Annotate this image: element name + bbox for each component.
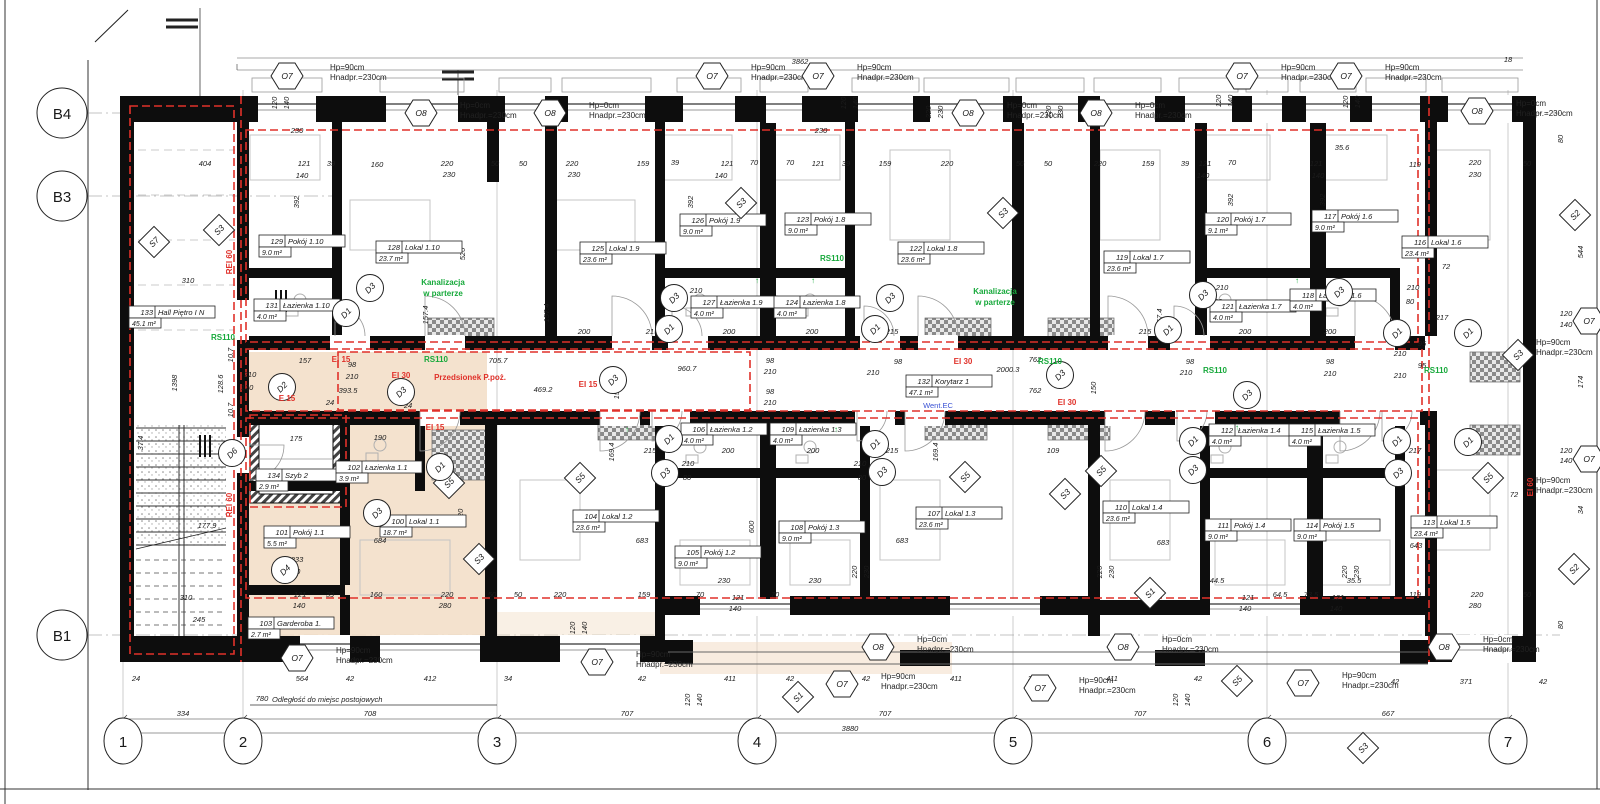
room-area: 4.0 m²	[257, 314, 278, 321]
dim-label: 50	[1016, 159, 1025, 168]
fire-rating-label: EI 30	[954, 357, 973, 366]
struct-marker-S5: S5	[564, 462, 595, 493]
room-label-114: 114Pokój 1.59.0 m²	[1294, 519, 1380, 541]
window-lintel-note: Hnadpr.=230cm	[881, 682, 938, 691]
dim-label: 120	[1214, 94, 1223, 107]
door-marker-D1: D1	[656, 426, 683, 453]
marker-id: O7	[1583, 454, 1595, 464]
room-name: Łazienka 1.10	[283, 301, 331, 310]
room-name: Lokal 1.9	[609, 244, 640, 253]
dim-label: 70	[750, 158, 759, 167]
room-number: 112	[1221, 426, 1234, 435]
grid-bubble-label: B4	[53, 106, 71, 123]
room-name: Łazienka 1.8	[803, 298, 846, 307]
door-marker-D1: D1	[1455, 320, 1482, 347]
dim-label: 683	[636, 536, 649, 545]
marker-id: O8	[1117, 642, 1129, 652]
dim-label: 220	[924, 105, 933, 119]
door-marker-D3: D3	[1190, 282, 1217, 309]
parking-note-text: Odległość do miejsc postojowych	[272, 695, 382, 704]
window-lintel-note: Hnadpr.=230cm	[917, 645, 974, 654]
room-number: 134	[267, 471, 280, 480]
room-name: Lokal 1.4	[1132, 503, 1162, 512]
room-area: 4.0 m²	[777, 311, 798, 318]
window-height-note: Hp=0cm	[1162, 635, 1192, 644]
room-number: 129	[270, 237, 283, 246]
dim-label: 215	[643, 446, 657, 455]
struct-marker-S3: S3	[203, 214, 234, 245]
window-lintel-note: Hnadpr.=230cm	[1516, 109, 1573, 118]
room-area: 23.6 m²	[1105, 516, 1130, 523]
flow-arrow: ↑	[1295, 276, 1299, 285]
room-number: 100	[391, 517, 404, 526]
room-label-133: 133Hall Piętro I N45.1 m²	[129, 306, 215, 328]
room-number: 102	[347, 463, 360, 472]
dim-label: 210	[763, 398, 777, 407]
dim-label: 70	[696, 590, 705, 599]
room-number: 106	[692, 425, 705, 434]
struct-marker-S2: S2	[1559, 199, 1590, 230]
room-name: Garderoba 1.	[277, 619, 321, 628]
dim-label: 210	[1215, 283, 1229, 292]
marker-id: O7	[706, 71, 718, 81]
grid-bubble-label: 6	[1263, 734, 1271, 751]
dim-label: 190	[374, 433, 387, 442]
dim-label: 35.6	[1335, 143, 1350, 152]
room-label-116: 116Lokal 1.623.4 m²	[1402, 236, 1488, 258]
dim-label: 220	[940, 159, 954, 168]
dim-label: 200	[722, 327, 736, 336]
door-marker-D1: D1	[427, 454, 454, 481]
sewage-note-line2: w parterze	[974, 298, 1015, 307]
dim-label: 39	[671, 158, 680, 167]
dim-label: 210	[689, 286, 703, 295]
flow-arrow: ↑	[811, 276, 815, 285]
room-label-110: 110Lokal 1.423.6 m²	[1103, 501, 1189, 523]
dim-label: 210	[681, 459, 695, 468]
window-lintel-note: Hnadpr.=230cm	[751, 73, 808, 82]
shaft-note: RS110	[424, 355, 449, 364]
dim-label: 70	[1228, 158, 1237, 167]
dim-label: 150	[1089, 381, 1098, 394]
window-marker-O7: O7Hp=90cmHnadpr.=230cm	[271, 63, 387, 89]
dim-label: 544	[1576, 246, 1585, 259]
dim-label: 220	[565, 159, 579, 168]
room-label-115: 115Łazienka 1.54.0 m²	[1289, 424, 1375, 446]
fire-rating-label: EI 60	[1526, 477, 1535, 496]
vent-note: Went.EC	[923, 401, 953, 410]
room-number: 132	[917, 377, 930, 386]
door-marker-D3: D3	[1180, 457, 1207, 484]
floor-plan-sheet: 3862404121391602205050220159391217014023…	[0, 0, 1600, 804]
floor-plan-drawing: 3862404121391602205050220159391217014023…	[0, 0, 1600, 804]
marker-id: O7	[1583, 316, 1595, 326]
dim-label: 42	[346, 674, 355, 683]
window-height-note: Hp=90cm	[1536, 338, 1571, 347]
dim-label: 3862	[792, 57, 810, 66]
dim-label: 210	[1406, 283, 1420, 292]
grid-bubble-label: 2	[239, 734, 247, 751]
grid-bubble-B3: B3	[37, 171, 87, 221]
dim-label: 1398	[170, 374, 179, 392]
dim-label: 175	[290, 434, 303, 443]
room-area: 9.0 m²	[262, 250, 283, 257]
struct-marker-S2: S2	[1558, 553, 1589, 584]
door-marker-D6: D6	[219, 440, 246, 467]
room-number: 111	[1218, 521, 1229, 530]
struct-marker-S3: S3	[1049, 478, 1080, 509]
shaft-note: RS110	[820, 254, 845, 263]
dim-label: 683	[1157, 538, 1170, 547]
dim-label: 310	[180, 593, 193, 602]
window-marker-O7: O7Hp=90cmHnadpr.=230cm	[802, 63, 914, 89]
dim-label: 70	[771, 590, 780, 599]
room-name: Pokój 1.5	[1323, 521, 1355, 530]
dim-label: 200	[805, 327, 819, 336]
room-number: 104	[584, 512, 597, 521]
window-marker-O7: O7Hp=90cmHnadpr.=230cm	[1287, 670, 1399, 696]
room-area: 2.9 m²	[258, 484, 280, 491]
dim-label: 159	[638, 590, 651, 599]
room-area: 4.0 m²	[1293, 304, 1314, 311]
struct-marker-S3: S3	[1347, 732, 1378, 763]
dim-label: 200	[1238, 327, 1252, 336]
dim-label: 140	[695, 693, 704, 706]
window-lintel-note: Hnadpr.=230cm	[1536, 348, 1593, 357]
room-name: Lokal 1.6	[1431, 238, 1462, 247]
dim-label: 220	[1095, 565, 1104, 579]
dim-label: 120	[241, 383, 254, 392]
dim-label: 50	[1044, 159, 1053, 168]
fire-rating-label: EI 30	[392, 371, 411, 380]
grid-bubble-3: 3	[478, 718, 516, 764]
dim-label: 50	[514, 590, 523, 599]
dim-label: 120	[683, 693, 692, 706]
dim-label: 80	[683, 473, 692, 482]
dim-label: 412	[424, 674, 437, 683]
fire-rating-label: EI 30	[1058, 398, 1077, 407]
dim-label: 72	[1510, 490, 1519, 499]
dim-label: 80	[1406, 297, 1415, 306]
fire-rating-label: EI 15	[332, 355, 351, 364]
dim-label: 200	[577, 327, 591, 336]
dim-label: 44.5	[1210, 576, 1225, 585]
room-area: 4.0 m²	[773, 438, 794, 445]
room-label-117: 117Pokój 1.69.0 m²	[1312, 210, 1398, 232]
dim-label: 200	[721, 446, 735, 455]
dim-label: 469.2	[534, 385, 554, 394]
window-lintel-note: Hnadpr.=230cm	[1135, 111, 1192, 120]
dim-label: 128.6	[216, 374, 225, 394]
fire-rating-label: REI 60	[225, 249, 234, 274]
door-marker-D3: D3	[661, 285, 688, 312]
dim-label: 140	[729, 604, 742, 613]
dim-label: 230	[808, 576, 822, 585]
dim-label: 960.7	[678, 364, 698, 373]
room-number: 101	[275, 528, 288, 537]
door-marker-D3: D3	[600, 367, 627, 394]
dim-label: 120	[1560, 309, 1573, 318]
room-name: Hall Piętro I N	[158, 308, 205, 317]
room-area: 9.0 m²	[1208, 534, 1229, 541]
room-number: 115	[1301, 426, 1314, 435]
grid-bubble-label: B3	[53, 189, 71, 206]
room-name: Łazienka 1.2	[710, 425, 753, 434]
room-number: 117	[1324, 212, 1337, 221]
room-label-119: 119Lokal 1.723.6 m²	[1104, 251, 1190, 273]
dim-label: 140	[1560, 456, 1573, 465]
room-area: 2.7 m²	[250, 632, 272, 639]
room-number: 128	[387, 243, 400, 252]
door-marker-D1: D1	[333, 300, 360, 327]
dim-label: 564	[296, 674, 309, 683]
shaft-note: RS110	[1203, 366, 1228, 375]
dim-label: 98	[766, 387, 775, 396]
dim-label: 392	[686, 195, 695, 208]
dim-label: 42	[786, 674, 795, 683]
window-height-note: Hp=90cm	[636, 650, 671, 659]
grid-bubble-label: 4	[753, 734, 761, 751]
grid-bubble-label: 5	[1009, 734, 1017, 751]
room-number: 125	[591, 244, 604, 253]
dim-label: 404	[199, 159, 212, 168]
struct-marker-S7: S7	[138, 226, 169, 257]
marker-id: O8	[544, 108, 556, 118]
door-marker-D3: D3	[388, 379, 415, 406]
door-marker-D3: D3	[1326, 279, 1353, 306]
dim-label: 220	[1093, 159, 1107, 168]
dim-label: 230	[1352, 565, 1361, 579]
dim-label: 667	[1382, 709, 1395, 718]
door-marker-D1: D1	[1384, 320, 1411, 347]
room-number: 124	[785, 298, 798, 307]
dim-label: 140	[1330, 604, 1343, 613]
dim-label: 2000.3	[996, 365, 1021, 374]
dim-label: 762	[1029, 386, 1042, 395]
dim-label: 121	[1332, 593, 1345, 602]
marker-id: O8	[415, 108, 427, 118]
dim-label: 371	[1460, 677, 1473, 686]
room-area: 9.0 m²	[788, 228, 809, 235]
dim-label: 64.5	[1273, 590, 1288, 599]
room-area: 4.0 m²	[684, 438, 705, 445]
dim-label: 392	[1226, 193, 1235, 206]
window-lintel-note: Hnadpr.=230cm	[857, 73, 914, 82]
dim-label: 121	[1242, 593, 1255, 602]
window-height-note: Hp=90cm	[1079, 676, 1114, 685]
room-name: Łazienka 1.7	[1239, 302, 1282, 311]
room-number: 116	[1414, 238, 1427, 247]
room-name: Łazienka 1.5	[1318, 426, 1361, 435]
dim-label: 157.4	[421, 306, 430, 325]
room-name: Pokój 1.9	[709, 216, 741, 225]
window-height-note: Hp=0cm	[1483, 635, 1513, 644]
marker-id: O7	[591, 657, 603, 667]
dim-label: 140	[1226, 94, 1235, 107]
marker-id: O8	[872, 642, 884, 652]
room-area: 18.7 m²	[383, 530, 407, 537]
grid-bubble-4: 4	[738, 718, 776, 764]
window-marker-O7: O7Hp=90cmHnadpr.=230cm	[826, 671, 938, 697]
door-marker-D3: D3	[1234, 382, 1261, 409]
window-lintel-note: Hnadpr.=230cm	[636, 660, 693, 669]
grid-bubble-2: 2	[224, 718, 262, 764]
room-area: 9.0 m²	[678, 561, 699, 568]
room-label-106: 106Łazienka 1.24.0 m²	[681, 423, 767, 445]
dim-label: 95	[1418, 339, 1427, 348]
grid-bubble-7: 7	[1489, 718, 1527, 764]
window-height-note: Hp=0cm	[1135, 101, 1165, 110]
grid-bubble-6: 6	[1248, 718, 1286, 764]
dim-label: 780	[256, 694, 269, 703]
room-area: 23.4 m²	[1404, 251, 1429, 258]
sewage-note-line1: Kanalizacja	[421, 278, 465, 287]
grid-bubble-label: 1	[119, 734, 127, 751]
dim-label: 280	[438, 601, 452, 610]
room-name: Szyb 2	[285, 471, 309, 480]
room-area: 9.0 m²	[683, 229, 704, 236]
room-name: Lokal 1.8	[927, 244, 958, 253]
struct-marker-S5: S5	[1221, 665, 1252, 696]
room-number: 114	[1306, 521, 1318, 530]
fire-rating-label: E 15	[279, 394, 296, 403]
room-number: 123	[796, 215, 809, 224]
dim-label: 708	[364, 709, 377, 718]
shaft-note: RS110	[1424, 366, 1449, 375]
room-name: Lokal 1.3	[945, 509, 976, 518]
window-lintel-note: Hnadpr.=230cm	[330, 73, 387, 82]
window-lintel-note: Hnadpr.=230cm	[1281, 73, 1338, 82]
dim-label: 411	[950, 674, 962, 683]
dim-label: 200	[806, 446, 820, 455]
grid-bubble-B4: B4	[37, 88, 87, 138]
room-number: 118	[1302, 291, 1315, 300]
dim-label: 392	[1318, 193, 1327, 206]
room-name: Pokój 1.6	[1341, 212, 1373, 221]
dim-label: 210	[345, 372, 359, 381]
window-height-note: Hp=90cm	[336, 646, 371, 655]
room-number: 103	[259, 619, 272, 628]
dim-label: 230	[567, 170, 581, 179]
grid-bubble-B1: B1	[37, 610, 87, 660]
room-number: 109	[781, 425, 794, 434]
dim-label: 217	[1408, 446, 1422, 455]
dim-label: 140	[293, 601, 306, 610]
room-area: 4.0 m²	[1292, 439, 1313, 446]
struct-marker-S1: S1	[782, 681, 813, 712]
window-lintel-note: Hnadpr.=230cm	[1007, 111, 1064, 120]
dim-label: 643	[1410, 541, 1423, 550]
dim-label: 177.9	[198, 521, 218, 530]
dim-label: 3880	[842, 724, 860, 733]
dim-label: 50	[488, 590, 497, 599]
room-area: 23.6 m²	[900, 257, 925, 264]
window-height-note: Hp=90cm	[1281, 63, 1316, 72]
room-label-112: 112Łazienka 1.44.0 m²	[1209, 424, 1295, 446]
room-number: 107	[927, 509, 940, 518]
dim-label: 24	[131, 674, 140, 683]
marker-id: O7	[291, 653, 303, 663]
struct-marker-S5: S5	[1472, 462, 1503, 493]
room-number: 120	[1216, 215, 1229, 224]
dim-label: 121	[1199, 159, 1212, 168]
marker-id: O7	[836, 679, 848, 689]
dim-label: 220	[440, 159, 454, 168]
window-marker-O7: O7Hp=90cmHnadpr.=230cm	[1226, 63, 1338, 89]
dim-label: 18	[1504, 55, 1513, 64]
door-marker-D1: D1	[656, 316, 683, 343]
room-name: Lokal 1.5	[1440, 518, 1471, 527]
dim-label: 215	[1138, 327, 1152, 336]
dim-label: 140	[1197, 171, 1210, 180]
dim-label: 210	[1179, 368, 1193, 377]
room-number: 108	[790, 523, 803, 532]
dim-label: 140	[282, 96, 291, 109]
dim-label: 42	[638, 674, 647, 683]
dim-label: 220	[553, 590, 567, 599]
grid-bubble-label: B1	[53, 628, 71, 645]
dim-label: 42	[862, 674, 871, 683]
vent-notes: Went.EC	[923, 401, 953, 410]
marker-id: O7	[1236, 71, 1248, 81]
dim-label: 220	[1340, 565, 1349, 579]
window-height-note: Hp=90cm	[857, 63, 892, 72]
room-area: 23.6 m²	[575, 525, 600, 532]
dim-label: 210	[1323, 369, 1337, 378]
flow-arrow: ↑	[1235, 423, 1239, 432]
flow-arrow: ↑	[625, 425, 629, 434]
dim-label: 119	[1409, 160, 1422, 169]
dim-label: 210	[763, 367, 777, 376]
dim-label: 39	[842, 159, 851, 168]
marker-id: O8	[962, 108, 974, 118]
marker-id: O7	[1034, 683, 1046, 693]
room-name: Łazienka 1.1	[365, 463, 408, 472]
dim-label: 120	[1560, 446, 1573, 455]
dim-label: 121	[298, 159, 311, 168]
door-marker-D1: D1	[1384, 428, 1411, 455]
grid-bubble-label: 7	[1504, 734, 1512, 751]
room-label-132: 132Korytarz 147.1 m²	[906, 375, 992, 397]
room-area: 9.0 m²	[1297, 534, 1318, 541]
room-number: 133	[140, 308, 153, 317]
dim-label: 707	[1134, 709, 1147, 718]
dim-label: 210	[1393, 349, 1407, 358]
dim-label: 50	[1523, 159, 1532, 168]
room-area: 23.6 m²	[1106, 266, 1131, 273]
flow-arrow: ↑	[834, 425, 838, 434]
marker-id: O8	[1471, 106, 1483, 116]
dim-label: 42	[1539, 677, 1548, 686]
fire-rating-label: REI 60	[225, 492, 234, 517]
fire-rating-label: Przedsionek P.poż.	[434, 373, 506, 382]
dim-label: 310	[182, 276, 195, 285]
dim-label: 230	[717, 576, 731, 585]
dim-label: 50	[519, 159, 528, 168]
dim-label: 169.4	[607, 443, 616, 462]
room-label-131: 131Łazienka 1.104.0 m²	[254, 299, 340, 321]
room-name: Pokój 1.2	[704, 548, 736, 557]
door-marker-D4: D4	[272, 557, 299, 584]
dim-label: 120	[839, 96, 848, 109]
dim-label: 210	[853, 459, 867, 468]
window-marker-O7: O7Hp=90cmHnadpr.=230cm	[1024, 675, 1136, 701]
dim-label: 73.5	[1304, 590, 1319, 599]
dim-label: 109	[1047, 446, 1060, 455]
door-marker-D3: D3	[652, 460, 679, 487]
room-name: Pokój 1.8	[814, 215, 846, 224]
dim-label: 37.4	[136, 436, 145, 451]
